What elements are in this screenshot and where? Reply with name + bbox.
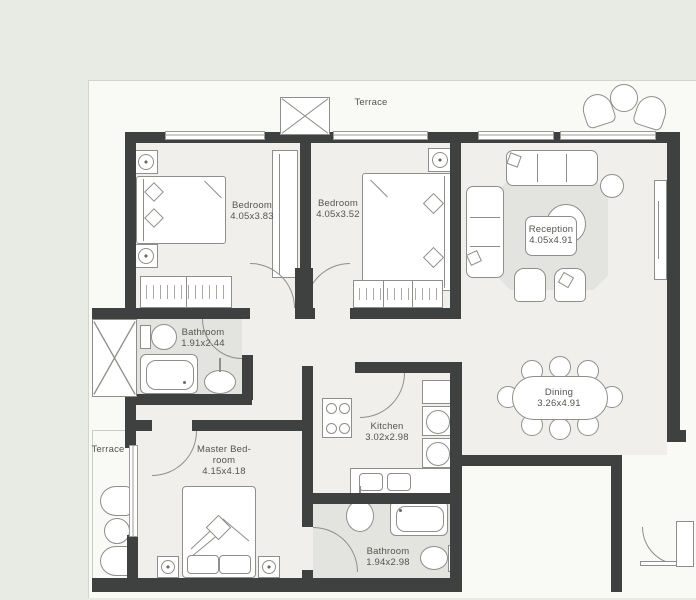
room-name: Terrace (68, 444, 148, 455)
room-dimensions: 4.15x4.18 (174, 466, 274, 477)
bed (182, 486, 256, 578)
room-label-bedroom-1: Bedroom 4.05x3.83 (202, 200, 302, 222)
fridge (422, 380, 452, 404)
bathtub (390, 500, 448, 536)
dining-chair (549, 418, 571, 440)
room-name: Bathroom (153, 327, 253, 338)
wall (611, 455, 622, 592)
kitchen-sink (387, 473, 411, 491)
nightstand (258, 556, 280, 578)
terrace-table (610, 84, 638, 112)
nightstand (428, 148, 452, 172)
terrace-chair (100, 486, 132, 516)
nightstand (134, 150, 158, 174)
wall (136, 420, 152, 431)
nightstand (157, 556, 179, 578)
room-label-master-bedroom: Master Bed- room 4.15x4.18 (174, 444, 274, 477)
sink (346, 500, 374, 532)
room-label-terrace-top: Terrace (331, 97, 411, 108)
room-label-bathroom-2: Bathroom 1.94x2.98 (338, 546, 438, 568)
room-dimensions: 1.91x2.44 (153, 338, 253, 349)
room-name: Dining (509, 387, 609, 398)
room-name: Master Bed- (174, 444, 274, 455)
kitchen-counter (350, 468, 452, 494)
room-label-terrace-left: Terrace (68, 444, 148, 455)
wall (667, 132, 680, 442)
room-label-bathroom-1: Bathroom 1.91x2.44 (153, 327, 253, 349)
wall (302, 570, 313, 580)
room-name: Terrace (331, 97, 411, 108)
room-label-reception: Reception 4.05x4.91 (501, 224, 601, 246)
room-name: Reception (501, 224, 601, 235)
wall (125, 132, 136, 319)
room-dimensions: 4.05x4.91 (501, 235, 601, 246)
wall (192, 420, 313, 431)
wall (313, 493, 450, 504)
wall (127, 535, 138, 582)
room-dimensions: 3.26x4.91 (509, 398, 609, 409)
wall (355, 362, 462, 373)
wall (350, 308, 461, 319)
sink-tap (219, 358, 221, 372)
wall (450, 143, 461, 310)
room-dimensions: 4.05x3.83 (202, 211, 302, 222)
window-master-terrace (129, 445, 138, 537)
armchair (514, 268, 546, 302)
window-bedroom-1 (165, 131, 265, 140)
window-bedroom-2 (333, 131, 428, 140)
room-name: Kitchen (337, 421, 437, 432)
entry-door-panel (676, 521, 694, 567)
room-name: room (174, 455, 274, 466)
room-dimensions: 4.05x3.52 (288, 209, 388, 220)
bathtub (140, 354, 198, 394)
shaft-x-box (92, 319, 137, 397)
room-label-kitchen: Kitchen 3.02x2.98 (337, 421, 437, 443)
dining-chair (549, 356, 571, 378)
side-table (600, 174, 624, 198)
shaft-x-box (280, 97, 330, 135)
room-dimensions: 3.02x2.98 (337, 432, 437, 443)
room-dimensions: 1.94x2.98 (338, 557, 438, 568)
window-reception-b (560, 131, 656, 140)
tv-unit (654, 180, 667, 280)
room-name: Bedroom (288, 198, 388, 209)
wall (136, 394, 252, 405)
window-reception-a (478, 131, 554, 140)
wall (125, 394, 136, 448)
wall (295, 268, 313, 310)
room-label-dining: Dining 3.26x4.91 (509, 387, 609, 409)
kitchen-sink (359, 473, 383, 491)
wall (450, 362, 462, 578)
bed (362, 173, 452, 291)
floor-plan-canvas: Terrace Bedroom 4.05x3.83 Bedroom 4.05x3… (0, 0, 696, 600)
room-name: Bathroom (338, 546, 438, 557)
sink (204, 370, 236, 394)
wall (450, 455, 622, 466)
nightstand (134, 244, 158, 268)
closet-hangers (140, 276, 232, 308)
room-label-bedroom-2: Bedroom 4.05x3.52 (288, 198, 388, 220)
wall (667, 430, 686, 442)
wall (92, 308, 250, 319)
wall (92, 578, 462, 592)
wall (302, 366, 313, 527)
room-name: Bedroom (202, 200, 302, 211)
closet-hangers (353, 280, 443, 308)
